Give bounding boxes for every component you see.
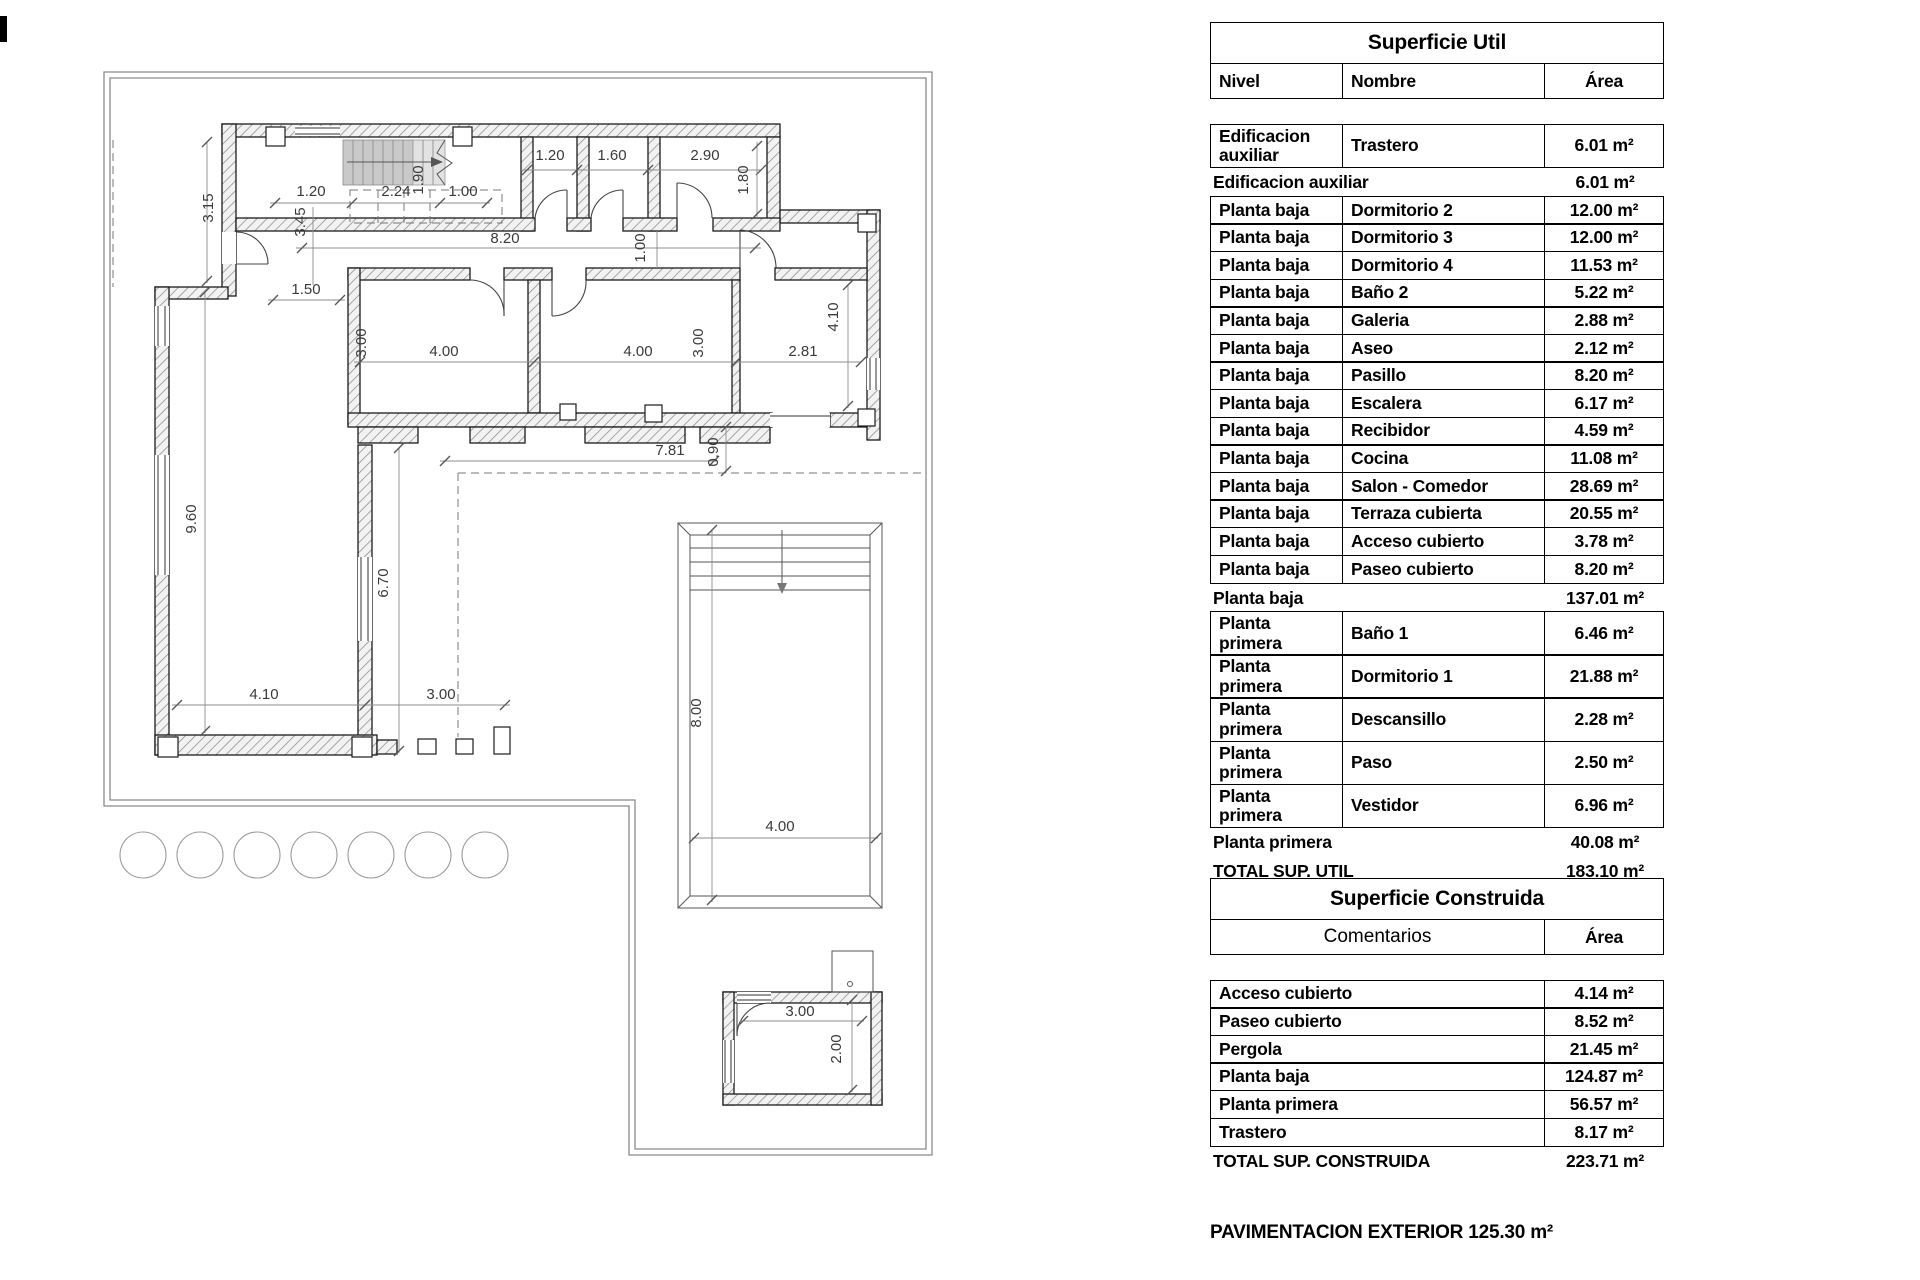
table-title: Superficie Util [1210,22,1664,64]
table-row: Planta baja124.87 m² [1210,1062,1664,1091]
superficie-util-table: Superficie Util Nivel Nombre Área Edific… [1210,22,1664,886]
table-row: Trastero8.17 m² [1210,1118,1664,1147]
cell-area: 2.12 m² [1545,335,1663,362]
cell-nombre: Aseo [1343,335,1545,362]
dimension-label: 4.10 [249,686,278,703]
cell-nombre: Dormitorio 2 [1343,197,1545,224]
cell-area: 3.78 m² [1545,528,1663,555]
header-nombre: Nombre [1343,64,1545,98]
dimension-label: 3.15 [200,193,217,222]
dimension-label: 1.50 [291,281,320,298]
subtotal-label: Edificacion auxiliar [1213,172,1546,193]
cell-nombre: Terraza cubierta [1343,500,1545,527]
dimension-label: 2.00 [828,1034,845,1063]
cell-comentario: Pergola [1211,1036,1545,1063]
header-area: Área [1545,920,1663,954]
floor-plan: 3.15 3.45 1.20 2.24 1.00 1.90 1.20 1.60 … [0,0,1180,1280]
header-nivel: Nivel [1211,64,1343,98]
walls [155,124,882,1105]
dimension-label: 2.81 [788,343,817,360]
cell-area: 6.01 m² [1545,125,1663,168]
dimension-label: 8.00 [688,698,705,727]
table-row: Planta bajaCocina11.08 m² [1210,444,1664,473]
cell-nivel: Planta baja [1211,556,1343,583]
tree-row [120,832,508,878]
dimension-label: 3.00 [353,328,370,357]
cell-nivel: Planta baja [1211,307,1343,334]
cell-nivel: Edificacion auxiliar [1211,125,1343,168]
cell-nivel: Planta primera [1211,698,1343,741]
table-row: Planta bajaRecibidor4.59 m² [1210,417,1664,446]
dimension-label: 1.80 [735,165,752,194]
table-row: Planta primeraPaso2.50 m² [1210,741,1664,786]
cell-nivel: Planta primera [1211,742,1343,785]
dimension-lines [172,137,881,1095]
cell-nivel: Planta baja [1211,445,1343,472]
cell-area: 8.17 m² [1545,1119,1663,1146]
cell-area: 6.96 m² [1545,785,1663,828]
table-header-row: Nivel Nombre Área [1210,64,1664,99]
cell-area: 6.17 m² [1545,390,1663,417]
cell-nivel: Planta baja [1211,418,1343,445]
table-body: Acceso cubierto4.14 m²Paseo cubierto8.52… [1210,980,1664,1147]
subtotal-row: Planta primera40.08 m² [1210,828,1664,857]
dimension-label: 4.00 [429,343,458,360]
cell-nivel: Planta baja [1211,500,1343,527]
dimension-label: 3.00 [785,1003,814,1020]
cell-nombre: Baño 1 [1343,612,1545,655]
dimension-label: 1.00 [448,183,477,200]
table-header-row: Comentarios Área [1210,920,1664,955]
dimension-label: 1.60 [597,147,626,164]
cell-nombre: Vestidor [1343,785,1545,828]
cell-comentario: Planta primera [1211,1091,1545,1118]
cell-nivel: Planta baja [1211,280,1343,307]
dimension-label: 1.20 [535,147,564,164]
cell-nombre: Dormitorio 4 [1343,252,1545,279]
table-row: Planta bajaGaleria2.88 m² [1210,306,1664,335]
dimension-label: 0.90 [705,437,722,466]
cell-area: 2.50 m² [1545,742,1663,785]
table-row: Planta bajaAcceso cubierto3.78 m² [1210,527,1664,556]
cell-nivel: Planta baja [1211,390,1343,417]
table-row: Planta primera56.57 m² [1210,1090,1664,1119]
dimension-label: 8.20 [490,230,519,247]
table-row: Planta bajaTerraza cubierta20.55 m² [1210,499,1664,528]
dimension-label: 4.00 [765,818,794,835]
cell-nivel: Planta baja [1211,473,1343,500]
cell-nombre: Paso [1343,742,1545,785]
cell-area: 21.45 m² [1545,1036,1663,1063]
cell-nivel: Planta baja [1211,252,1343,279]
dimension-label: 1.20 [296,183,325,200]
cell-nombre: Baño 2 [1343,280,1545,307]
dimension-label: 2.24 [381,183,410,200]
dimension-label: 4.10 [825,302,842,331]
dimension-label: 3.00 [426,686,455,703]
dimension-label: 3.00 [690,328,707,357]
cell-area: 12.00 m² [1545,224,1663,251]
dimension-label: 9.60 [183,504,200,533]
dimension-label: 3.45 [292,207,309,236]
subtotal-area: 137.01 m² [1546,588,1664,609]
cell-nivel: Planta baja [1211,335,1343,362]
table-row: Planta primeraBaño 16.46 m² [1210,611,1664,656]
cell-comentario: Planta baja [1211,1063,1545,1090]
subtotal-row: Edificacion auxiliar6.01 m² [1210,168,1664,197]
cell-nombre: Recibidor [1343,418,1545,445]
cell-nombre: Cocina [1343,445,1545,472]
dimension-label: 1.90 [410,165,427,194]
cell-area: 11.53 m² [1545,252,1663,279]
cell-area: 56.57 m² [1545,1091,1663,1118]
dimension-labels: 3.15 3.45 1.20 2.24 1.00 1.90 1.20 1.60 … [183,147,845,1064]
pavimentacion-note: PAVIMENTACION EXTERIOR 125.30 m² [1210,1222,1553,1244]
cell-nivel: Planta baja [1211,362,1343,389]
table-row: Planta bajaAseo2.12 m² [1210,334,1664,363]
cell-nombre: Pasillo [1343,362,1545,389]
table-row: Planta bajaDormitorio 411.53 m² [1210,251,1664,280]
cell-area: 8.20 m² [1545,362,1663,389]
cell-nivel: Planta primera [1211,785,1343,828]
dimension-label: 4.00 [623,343,652,360]
table-row: Planta primeraVestidor6.96 m² [1210,784,1664,829]
cell-area: 124.87 m² [1545,1063,1663,1090]
dimension-label: 6.70 [375,568,392,597]
subtotal-area: 6.01 m² [1546,172,1664,193]
cell-nivel: Planta baja [1211,528,1343,555]
cell-area: 11.08 m² [1545,445,1663,472]
pool [678,523,882,908]
cell-area: 6.46 m² [1545,612,1663,655]
cell-nombre: Escalera [1343,390,1545,417]
cell-nivel: Planta baja [1211,224,1343,251]
table-row: Acceso cubierto4.14 m² [1210,980,1664,1009]
cell-nombre: Dormitorio 3 [1343,224,1545,251]
cell-area: 4.59 m² [1545,418,1663,445]
table-row: Planta bajaPasillo8.20 m² [1210,361,1664,390]
table-row: Planta bajaEscalera6.17 m² [1210,389,1664,418]
header-area: Área [1545,64,1663,98]
cell-comentario: Trastero [1211,1119,1545,1146]
cell-nombre: Descansillo [1343,698,1545,741]
cell-nivel: Planta baja [1211,197,1343,224]
table-row: Planta primeraDescansillo2.28 m² [1210,697,1664,742]
table-row: Paseo cubierto8.52 m² [1210,1007,1664,1036]
page: 3.15 3.45 1.20 2.24 1.00 1.90 1.20 1.60 … [0,0,1920,1280]
dimension-label: 1.00 [632,233,649,262]
cell-area: 28.69 m² [1545,473,1663,500]
cell-area: 8.20 m² [1545,556,1663,583]
cell-nombre: Acceso cubierto [1343,528,1545,555]
cell-nombre: Dormitorio 1 [1343,655,1545,698]
total-area: 223.71 m² [1546,1151,1664,1172]
cell-area: 8.52 m² [1545,1008,1663,1035]
table-row: Planta bajaDormitorio 312.00 m² [1210,223,1664,252]
cell-area: 2.28 m² [1545,698,1663,741]
cell-comentario: Acceso cubierto [1211,981,1545,1008]
table-row: Planta bajaPaseo cubierto8.20 m² [1210,555,1664,584]
dimension-label: 2.90 [690,147,719,164]
total-label: TOTAL SUP. CONSTRUIDA [1213,1151,1546,1172]
outdoor-unit [832,951,873,992]
cell-area: 12.00 m² [1545,197,1663,224]
cell-comentario: Paseo cubierto [1211,1008,1545,1035]
subtotal-row: Planta baja137.01 m² [1210,584,1664,613]
cell-area: 21.88 m² [1545,655,1663,698]
table-row: Planta bajaDormitorio 212.00 m² [1210,196,1664,225]
cell-nombre: Trastero [1343,125,1545,168]
cell-area: 4.14 m² [1545,981,1663,1008]
cell-area: 20.55 m² [1545,500,1663,527]
subtotal-area: 40.08 m² [1546,832,1664,853]
cell-nombre: Salon - Comedor [1343,473,1545,500]
cell-nivel: Planta primera [1211,612,1343,655]
cell-area: 5.22 m² [1545,280,1663,307]
header-comentarios: Comentarios [1211,920,1545,954]
subtotal-label: Planta primera [1213,832,1546,853]
table-row: Edificacion auxiliarTrastero6.01 m² [1210,124,1664,169]
superficie-construida-table: Superficie Construida Comentarios Área A… [1210,878,1664,1176]
table-body: Edificacion auxiliarTrastero6.01 m²Edifi… [1210,124,1664,858]
cell-nivel: Planta primera [1211,655,1343,698]
cell-area: 2.88 m² [1545,307,1663,334]
dimension-label: 7.81 [655,442,684,459]
table-row: Planta bajaSalon - Comedor28.69 m² [1210,472,1664,501]
cell-nombre: Galeria [1343,307,1545,334]
table-row: Planta bajaBaño 25.22 m² [1210,279,1664,308]
table-row: Pergola21.45 m² [1210,1035,1664,1064]
table-row: Planta primeraDormitorio 121.88 m² [1210,654,1664,699]
total-row: TOTAL SUP. CONSTRUIDA 223.71 m² [1210,1147,1664,1176]
subtotal-label: Planta baja [1213,588,1546,609]
table-title: Superficie Construida [1210,878,1664,920]
cell-nombre: Paseo cubierto [1343,556,1545,583]
